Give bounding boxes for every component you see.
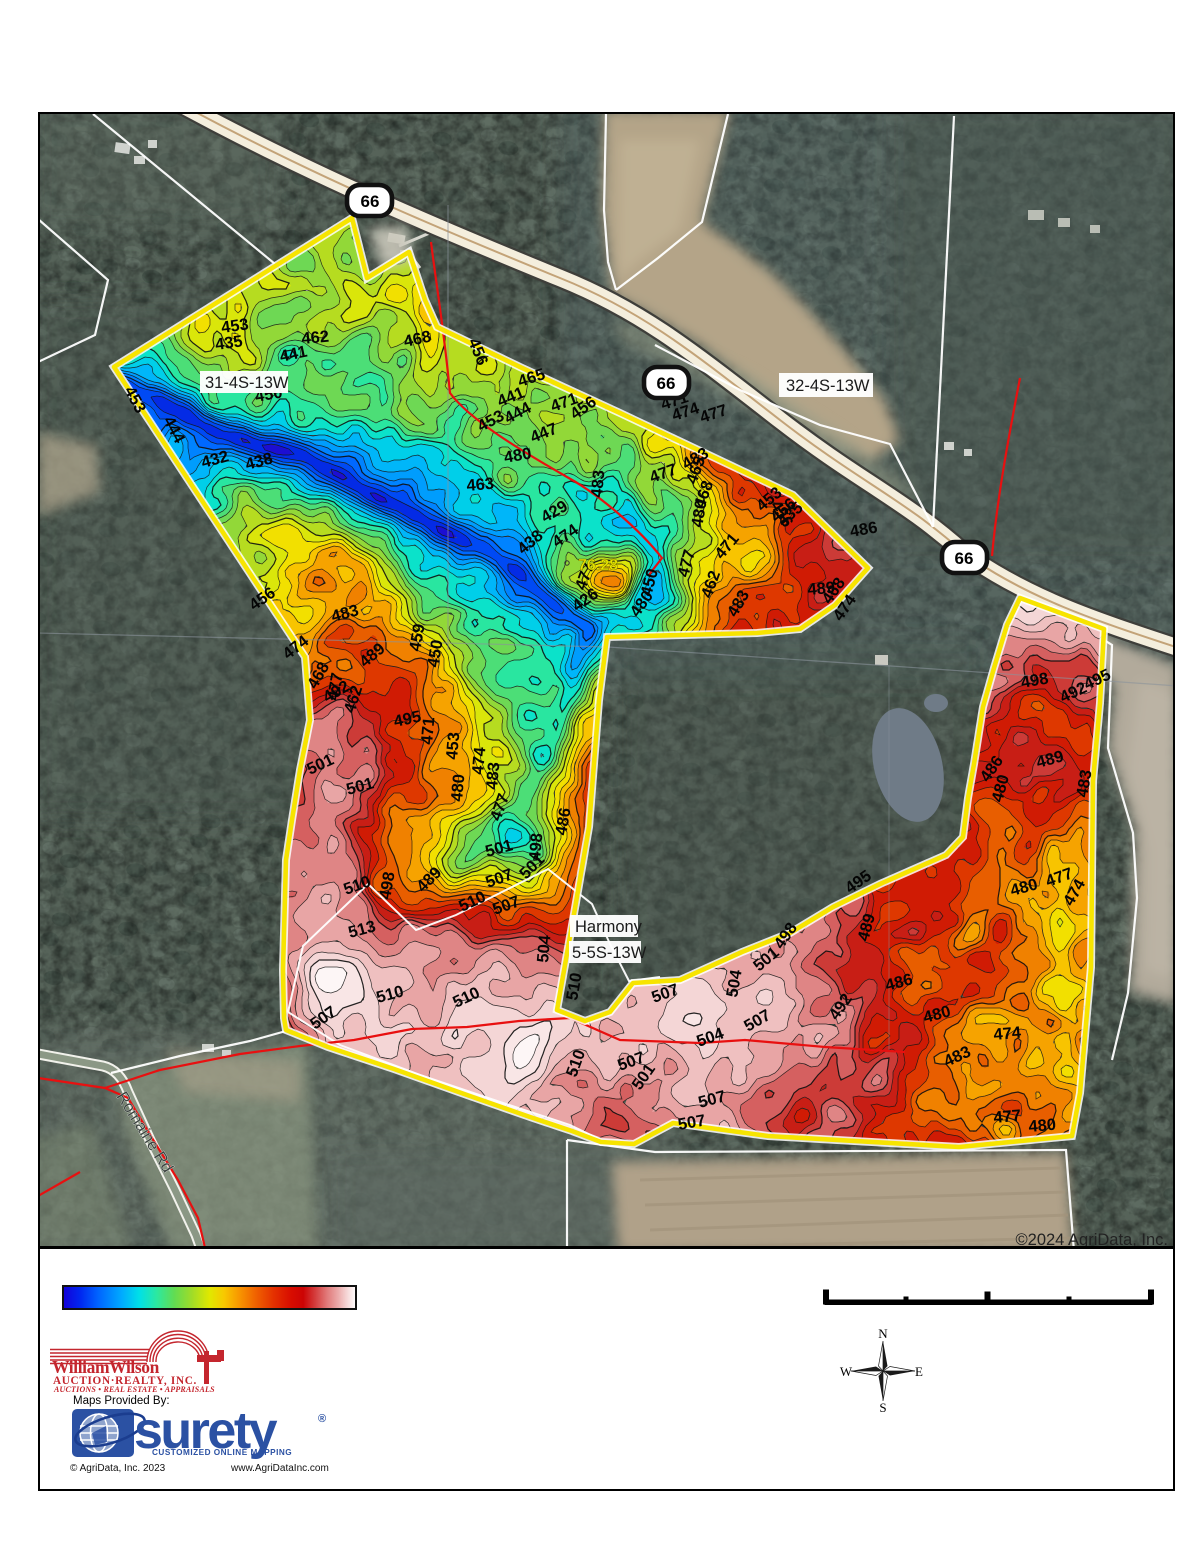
svg-text:5-5S-13W: 5-5S-13W: [572, 944, 647, 962]
svg-text:31-4S-13W: 31-4S-13W: [205, 374, 289, 392]
svg-text:N: N: [878, 1326, 888, 1341]
svg-text:477: 477: [993, 1107, 1022, 1127]
svg-text:®: ®: [318, 1413, 326, 1425]
svg-text:66: 66: [955, 549, 974, 568]
svg-text:66: 66: [657, 374, 676, 393]
svg-text:©2024 AgriData, Inc.: ©2024 AgriData, Inc.: [1016, 1231, 1169, 1246]
svg-text:504: 504: [534, 934, 554, 964]
svg-text:© AgriData, Inc. 2023: © AgriData, Inc. 2023: [70, 1463, 166, 1474]
svg-text:AUCTIONS • REAL ESTATE • APPRA: AUCTIONS • REAL ESTATE • APPRAISALS: [53, 1385, 215, 1394]
svg-text:www.AgriDataInc.com: www.AgriDataInc.com: [230, 1463, 329, 1474]
svg-text:435: 435: [214, 332, 244, 354]
svg-text:453: 453: [443, 731, 463, 760]
svg-text:480: 480: [448, 773, 468, 802]
svg-text:463: 463: [466, 475, 495, 495]
svg-text:474: 474: [993, 1024, 1023, 1044]
svg-text:S: S: [879, 1400, 886, 1415]
svg-text:480: 480: [1028, 1116, 1057, 1136]
svg-text:CUSTOMIZED ONLINE MAPPING: CUSTOMIZED ONLINE MAPPING: [152, 1448, 292, 1457]
svg-text:Harmony: Harmony: [575, 918, 643, 936]
svg-text:483: 483: [483, 761, 503, 790]
svg-text:WilliamWilson: WilliamWilson: [52, 1357, 160, 1377]
svg-text:E: E: [915, 1364, 923, 1379]
svg-text:471: 471: [418, 716, 438, 745]
svg-text:66: 66: [361, 192, 380, 211]
svg-text:483: 483: [588, 469, 608, 498]
svg-text:32-4S-13W: 32-4S-13W: [786, 377, 870, 395]
svg-text:76.28: 76.28: [578, 557, 618, 574]
svg-text:W: W: [840, 1364, 853, 1379]
